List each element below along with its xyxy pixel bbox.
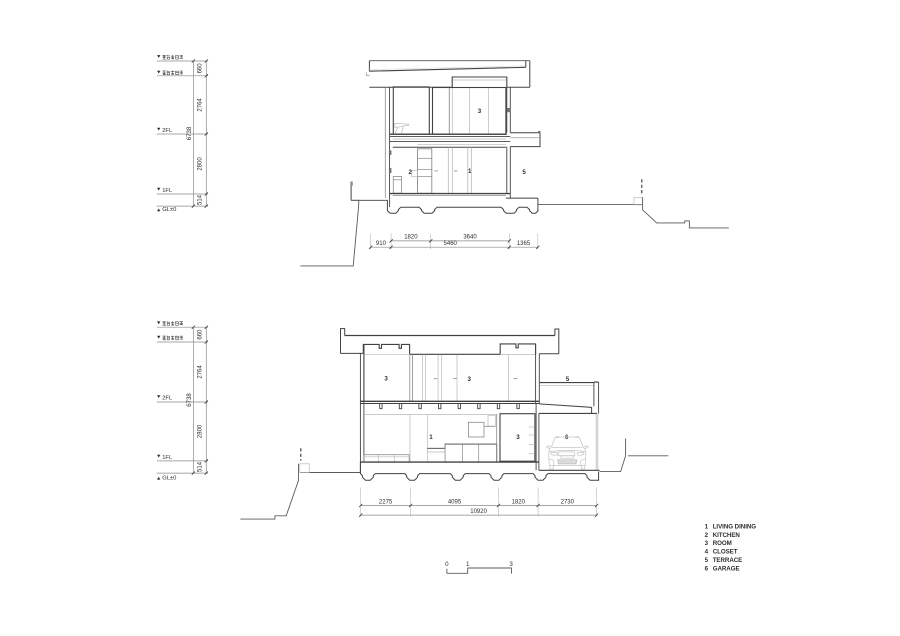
svg-text:3: 3 [516, 434, 520, 441]
svg-text:1: 1 [429, 434, 433, 441]
svg-text:2800: 2800 [198, 157, 204, 171]
svg-text:KITCHEN: KITCHEN [713, 532, 741, 539]
svg-text:5: 5 [705, 557, 709, 564]
svg-text:1: 1 [466, 561, 470, 568]
svg-text:2764: 2764 [198, 98, 204, 112]
svg-text:6738: 6738 [187, 393, 193, 407]
svg-text:2764: 2764 [198, 365, 204, 379]
svg-text:6738: 6738 [187, 126, 193, 140]
svg-text:2FL: 2FL [162, 128, 173, 134]
svg-text:1FL: 1FL [162, 455, 173, 461]
svg-text:2800: 2800 [198, 424, 204, 438]
svg-text:910: 910 [376, 241, 387, 247]
svg-text:3: 3 [509, 561, 513, 568]
svg-text:3: 3 [478, 108, 482, 115]
svg-text:514: 514 [198, 194, 204, 205]
svg-text:4095: 4095 [448, 499, 462, 505]
svg-text:3: 3 [705, 540, 709, 547]
svg-text:1365: 1365 [517, 241, 531, 247]
svg-text:GL±0: GL±0 [162, 475, 176, 481]
svg-text:GARAGE: GARAGE [713, 566, 740, 573]
svg-text:2: 2 [705, 532, 709, 539]
svg-text:6: 6 [705, 566, 709, 573]
svg-text:LIVING DINING: LIVING DINING [713, 523, 757, 530]
svg-text:6: 6 [565, 434, 569, 441]
svg-text:1: 1 [705, 523, 709, 530]
svg-text:2275: 2275 [379, 499, 393, 505]
svg-text:1FL: 1FL [162, 188, 173, 194]
svg-text:4: 4 [705, 549, 709, 556]
svg-text:GL±0: GL±0 [162, 207, 176, 213]
svg-text:660: 660 [198, 63, 204, 74]
svg-text:10920: 10920 [470, 509, 487, 515]
svg-text:CLOSET: CLOSET [713, 549, 738, 556]
svg-text:2FL: 2FL [162, 396, 173, 402]
svg-text:2730: 2730 [561, 499, 575, 505]
svg-text:5460: 5460 [444, 241, 458, 247]
svg-text:ROOM: ROOM [713, 540, 732, 547]
svg-text:5: 5 [522, 169, 526, 176]
svg-text:3: 3 [384, 376, 388, 383]
svg-text:0: 0 [445, 561, 449, 568]
svg-text:3640: 3640 [463, 235, 477, 241]
svg-text:1820: 1820 [404, 235, 418, 241]
svg-text:514: 514 [198, 461, 204, 472]
svg-text:3: 3 [467, 376, 471, 383]
svg-text:TERRACE: TERRACE [713, 557, 743, 564]
svg-text:1820: 1820 [512, 499, 526, 505]
svg-text:660: 660 [198, 329, 204, 340]
